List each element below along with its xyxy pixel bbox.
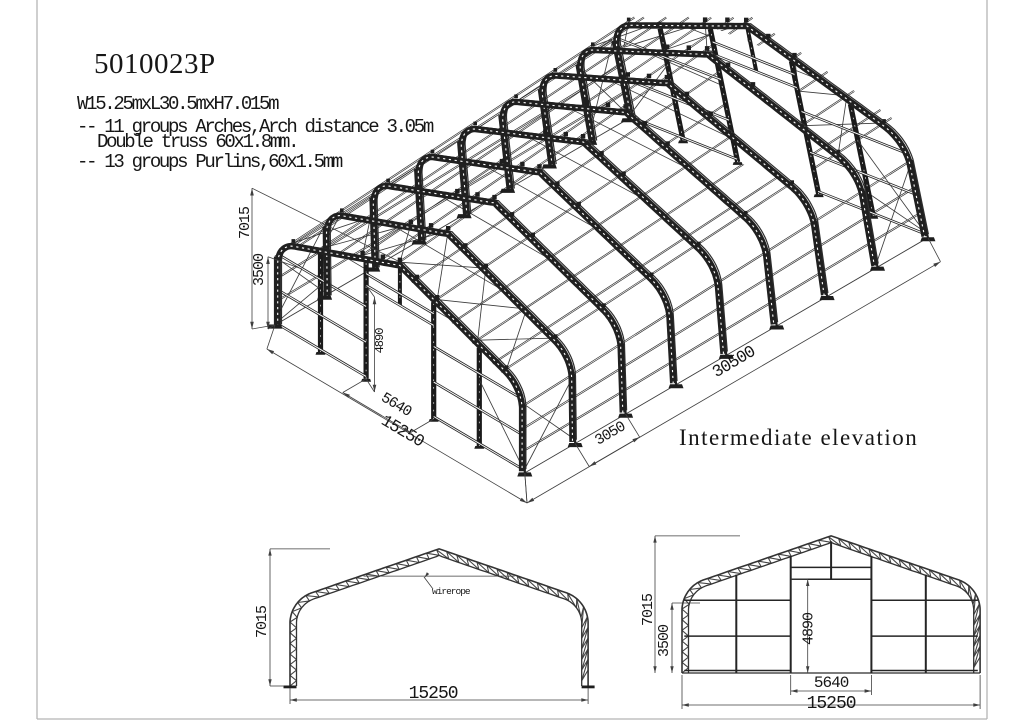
svg-text:4890: 4890	[801, 612, 818, 645]
svg-text:5640: 5640	[814, 674, 849, 692]
svg-text:7015: 7015	[640, 593, 657, 626]
svg-text:3500: 3500	[251, 253, 268, 286]
svg-text:15250: 15250	[807, 694, 856, 714]
svg-text:7015: 7015	[237, 206, 254, 239]
svg-text:4890: 4890	[373, 328, 387, 354]
svg-text:7015: 7015	[254, 605, 271, 638]
svg-text:wirerope: wirerope	[432, 586, 471, 597]
svg-text:Intermediate elevation: Intermediate elevation	[679, 425, 918, 450]
svg-text:3500: 3500	[656, 624, 673, 657]
svg-text:15250: 15250	[409, 684, 458, 704]
